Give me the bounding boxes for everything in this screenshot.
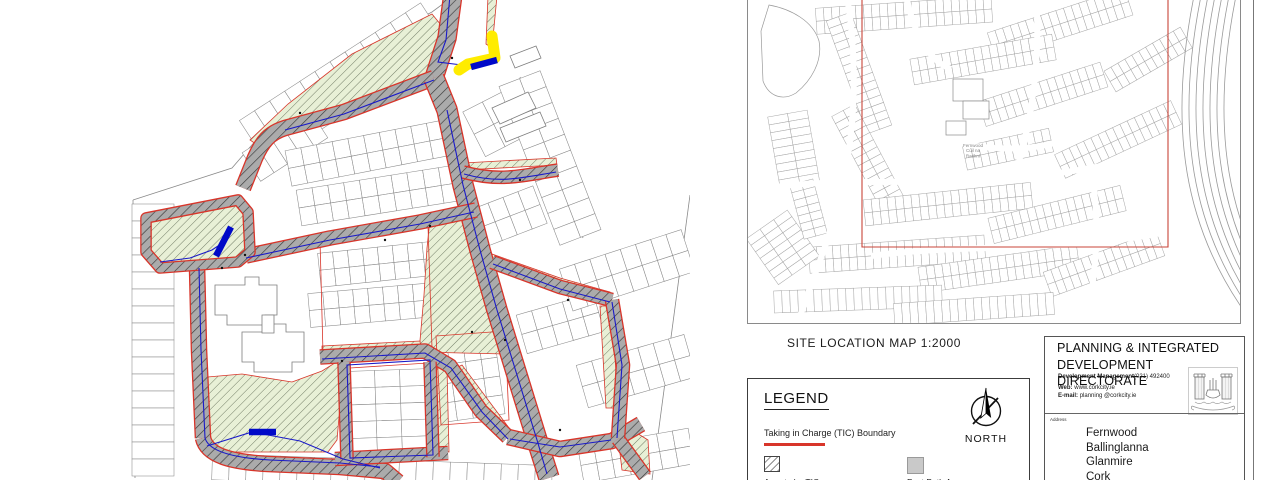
plot-row — [576, 335, 690, 408]
department-label: Development Management — [1058, 374, 1134, 380]
footpath-area-swatch — [907, 457, 924, 474]
plot-row — [978, 62, 1108, 126]
title-block-divider — [1045, 413, 1244, 414]
site-location-svg: FernwoodCúil naRaithní — [748, 0, 1240, 323]
legend-title: LEGEND — [764, 390, 829, 410]
plot-row — [768, 110, 820, 188]
north-label: NORTH — [954, 433, 1018, 445]
legend-panel: LEGEND Taking in Charge (TIC) Boundary A… — [747, 378, 1030, 480]
open-field — [761, 5, 820, 97]
plot-row — [1055, 101, 1182, 179]
tic-boundary-swatch — [764, 443, 825, 446]
north-arrow-icon — [962, 385, 1010, 433]
plot-row — [1104, 27, 1192, 92]
central-buildings — [946, 79, 989, 135]
sheet-border-right — [1253, 0, 1254, 480]
address-label: Address — [1050, 417, 1067, 422]
site-plan-map — [28, 0, 690, 480]
title-block: PLANNING & INTEGRATED DEVELOPMENT DIRECT… — [1044, 336, 1245, 480]
site-plan-svg — [28, 0, 690, 480]
legend-tic-boundary-label: Taking in Charge (TIC) Boundary — [764, 428, 896, 438]
site-address: Fernwood Ballinglanna Glanmire Cork — [1086, 426, 1149, 480]
site-location-map: FernwoodCúil naRaithní — [747, 0, 1241, 324]
org-line1: PLANNING & INTEGRATED — [1057, 341, 1219, 355]
drawing-sheet: FernwoodCúil naRaithní SITE LOCATION MAP… — [0, 0, 1280, 480]
plot-row — [350, 369, 428, 456]
estate-name-label: Raithní — [966, 153, 981, 158]
area-to-be-tic-swatch — [764, 456, 780, 472]
phone-number: (021) 492400 — [1134, 374, 1170, 380]
website: Web: www.corkcity.ie — [1058, 385, 1115, 391]
email: E-mail: planning @corkcity.ie — [1058, 393, 1136, 399]
cork-city-crest — [1188, 367, 1238, 415]
org-line2: DEVELOPMENT DIRECTORATE — [1057, 358, 1153, 389]
